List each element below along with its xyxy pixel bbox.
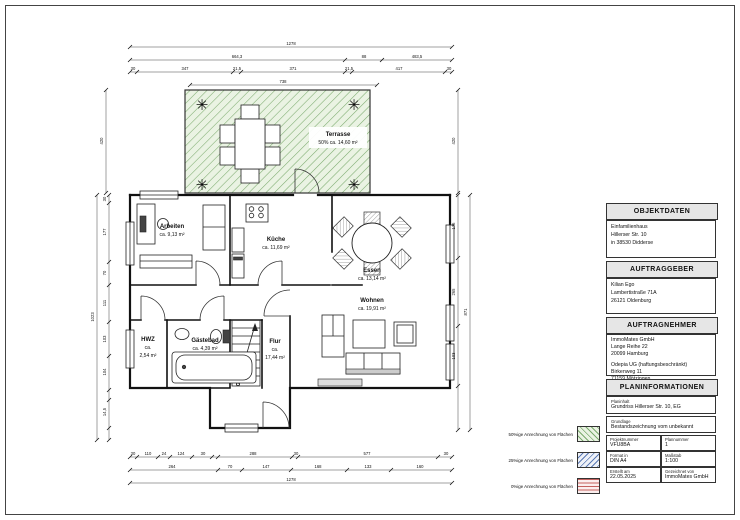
svg-text:ca. 4,39 m²: ca. 4,39 m²	[192, 346, 217, 352]
room-name-arbeiten: Arbeiten	[160, 224, 185, 230]
room-name-kueche: Küche	[267, 237, 286, 243]
svg-text:30: 30	[102, 196, 107, 201]
svg-text:17,44 m²: 17,44 m²	[265, 355, 285, 361]
svg-text:14,5: 14,5	[102, 407, 107, 416]
planinhalt-box: Planinhalt Grundriss Hillerser Str. 10, …	[606, 396, 716, 414]
svg-text:ca. 11,69 m²: ca. 11,69 m²	[262, 245, 290, 251]
auftraggeber-header: AUFTRAGGEBER	[606, 261, 718, 278]
svg-text:133: 133	[365, 464, 373, 469]
svg-text:1023: 1023	[90, 312, 95, 322]
svg-text:ca. 9,13 m²: ca. 9,13 m²	[159, 232, 184, 238]
svg-text:24: 24	[162, 451, 167, 456]
svg-text:30: 30	[131, 451, 136, 456]
contractor1-name: ImmoMates GmbH	[611, 337, 711, 344]
grundlage-box: Grundlage Bestandszeichnung vom unbekann…	[606, 416, 716, 433]
svg-text:50% ca. 14,60 m²: 50% ca. 14,60 m²	[318, 140, 358, 146]
svg-text:264: 264	[169, 464, 177, 469]
room-name-hwz: HWZ	[141, 337, 155, 343]
svg-text:147: 147	[263, 464, 271, 469]
room-name-essen: Essen	[363, 268, 381, 274]
svg-text:176: 176	[451, 222, 456, 230]
svg-text:2,54 m²: 2,54 m²	[140, 353, 157, 359]
format-value: DIN A4	[610, 458, 657, 464]
svg-text:168: 168	[315, 464, 323, 469]
svg-text:1278: 1278	[286, 41, 296, 46]
plant-icon: ✳	[196, 97, 209, 114]
svg-text:30: 30	[447, 66, 452, 71]
object-type: Einfamilienhaus	[611, 223, 711, 231]
svg-text:110: 110	[145, 451, 152, 456]
room-name-wohnen: Wohnen	[360, 298, 384, 304]
contractor2-street: Birkenweg 11	[611, 369, 711, 376]
svg-text:738: 738	[280, 79, 288, 84]
svg-text:88: 88	[362, 54, 367, 59]
auftragnehmer-header: AUFTRAGNEHMER	[606, 317, 718, 334]
svg-text:664,3: 664,3	[232, 54, 243, 59]
svg-text:103: 103	[451, 352, 456, 360]
legend-swatch-blue-hatch-icon	[577, 452, 600, 468]
svg-text:30: 30	[444, 451, 449, 456]
svg-text:21,5: 21,5	[233, 66, 242, 71]
svg-text:871: 871	[463, 308, 468, 316]
terrace-label: Terrasse 50% ca. 14,60 m²	[309, 127, 367, 148]
svg-text:111: 111	[102, 299, 107, 306]
svg-text:177: 177	[102, 228, 107, 236]
svg-text:30: 30	[201, 451, 206, 456]
legend-item-25: 25%ige Anrechnung von Flächen	[500, 452, 600, 468]
svg-text:104: 104	[102, 368, 107, 376]
svg-text:577: 577	[364, 451, 372, 456]
legend-swatch-red-lines-icon	[577, 478, 600, 494]
plant-icon: ✳	[196, 177, 209, 194]
plan-sheet: ✳ ✳ ✳ ✳ Terrasse 50% ca. 14,60 m²	[0, 0, 740, 520]
svg-text:30: 30	[294, 451, 299, 456]
object-street: Hillerser Str. 10	[611, 231, 711, 239]
svg-text:30: 30	[131, 66, 136, 71]
projektnummer-value: VFU8BA	[610, 442, 657, 448]
planinhalt-value: Grundriss Hillerser Str. 10, EG	[611, 404, 711, 411]
planinfo-grid: ProjektnummerVFU8BA Plannummer1 Format i…	[606, 435, 716, 483]
client-street: Lambertistraße 71A	[611, 289, 711, 297]
contractor1-street: Lange Reihe 22	[611, 344, 711, 351]
plannummer-value: 1	[665, 442, 712, 448]
contractor1-city: 20099 Hamburg	[611, 351, 711, 358]
legend-swatch-green-hatch-icon	[577, 426, 600, 442]
client-name: Kilian Ego	[611, 281, 711, 289]
svg-text:288: 288	[250, 451, 258, 456]
svg-text:265: 265	[451, 288, 456, 296]
svg-text:417: 417	[396, 66, 404, 71]
svg-text:371: 371	[290, 66, 298, 71]
svg-text:347: 347	[182, 66, 190, 71]
legend-label-25: 25%ige Anrechnung von Flächen	[509, 458, 573, 463]
svg-text:103: 103	[102, 335, 107, 343]
object-city: in 38530 Didderse	[611, 239, 711, 247]
gezeichnet-value: ImmoMates GmbH	[665, 474, 712, 480]
room-name-flur: Flur	[269, 339, 281, 345]
legend-item-50: 50%ige Anrechnung von Flächen	[500, 426, 600, 442]
svg-text:ca. 19,91 m²: ca. 19,91 m²	[358, 306, 386, 312]
contractor2-name: Odepia UG (haftungsbeschränkt)	[611, 362, 711, 369]
grundlage-value: Bestandszeichnung vom unbekannt	[611, 424, 711, 431]
svg-text:1278: 1278	[286, 477, 296, 482]
svg-text:420: 420	[451, 137, 456, 145]
legend-item-0: 0%ige Anrechnung von Flächen	[500, 478, 600, 494]
svg-text:124: 124	[178, 451, 186, 456]
legend-label-0: 0%ige Anrechnung von Flächen	[511, 484, 573, 489]
svg-text:483,5: 483,5	[412, 54, 423, 59]
svg-text:160: 160	[417, 464, 425, 469]
legend-label-50: 50%ige Anrechnung von Flächen	[509, 432, 573, 437]
svg-text:ca.: ca.	[145, 345, 152, 351]
plant-icon: ✳	[348, 177, 361, 194]
erstellt-value: 22.05.2025	[610, 474, 657, 480]
svg-text:ca.: ca.	[272, 347, 279, 353]
svg-text:21,5: 21,5	[345, 66, 354, 71]
svg-text:70: 70	[228, 464, 233, 469]
objektdaten-header: OBJEKTDATEN	[606, 203, 718, 220]
plant-icon: ✳	[348, 97, 361, 114]
auftraggeber-box: Kilian Ego Lambertistraße 71A 26121 Olde…	[606, 278, 716, 314]
svg-text:Terrasse: Terrasse	[326, 132, 351, 138]
auftragnehmer-box: ImmoMates GmbH Lange Reihe 22 20099 Hamb…	[606, 334, 716, 376]
svg-text:ca. 13,14 m²: ca. 13,14 m²	[358, 276, 386, 282]
objektdaten-box: Einfamilienhaus Hillerser Str. 10 in 385…	[606, 220, 716, 258]
room-name-gaestebad: Gästebad	[191, 338, 219, 344]
svg-text:70: 70	[102, 270, 107, 275]
client-city: 26121 Oldenburg	[611, 297, 711, 305]
svg-text:420: 420	[99, 137, 104, 145]
terrace: ✳ ✳ ✳ ✳ Terrasse 50% ca. 14,60 m²	[185, 90, 370, 194]
planinformationen-header: PLANINFORMATIONEN	[606, 379, 718, 396]
massstab-value: 1:100	[665, 458, 712, 464]
